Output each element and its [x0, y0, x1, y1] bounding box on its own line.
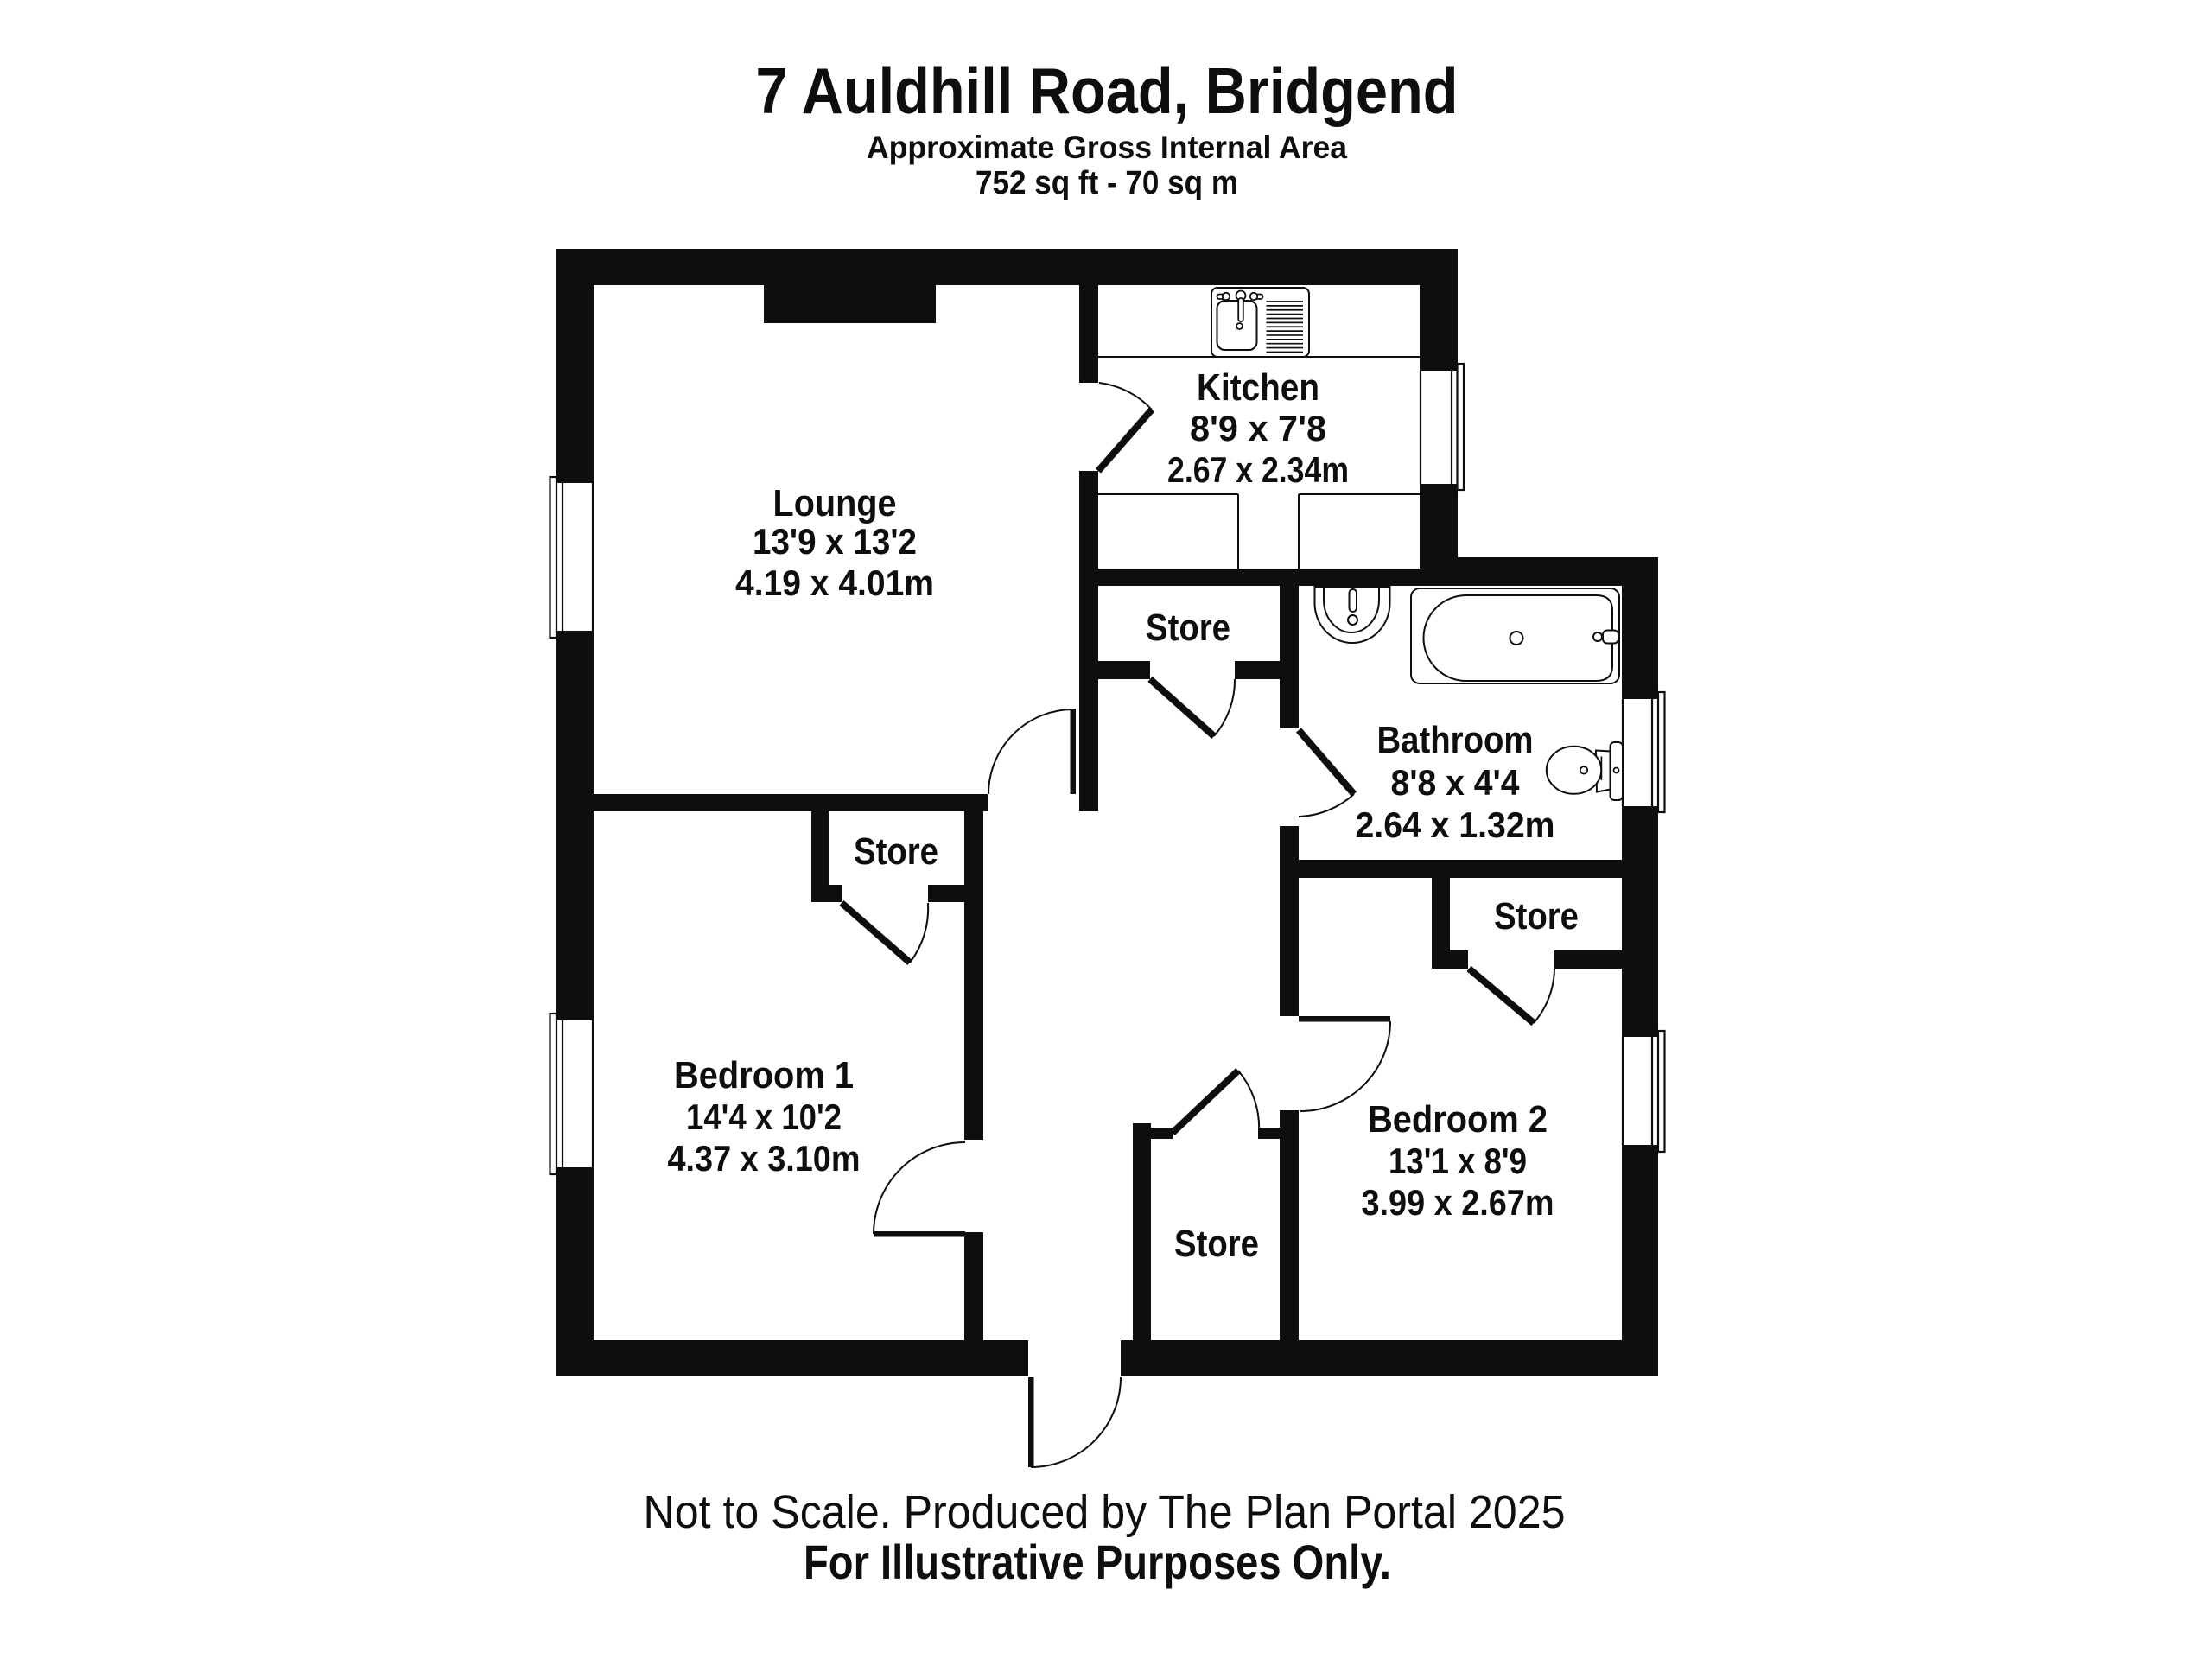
svg-text:Store: Store — [1174, 1223, 1259, 1265]
svg-text:2.64 x 1.32m: 2.64 x 1.32m — [1356, 804, 1555, 845]
svg-text:4.19 x 4.01m: 4.19 x 4.01m — [735, 563, 934, 603]
svg-text:14'4 x 10'2: 14'4 x 10'2 — [686, 1096, 842, 1137]
svg-text:Store: Store — [854, 830, 938, 873]
svg-text:2.67 x 2.34m: 2.67 x 2.34m — [1167, 449, 1349, 490]
svg-text:Bedroom 2: Bedroom 2 — [1368, 1098, 1548, 1141]
svg-text:13'9 x 13'2: 13'9 x 13'2 — [753, 521, 917, 562]
svg-text:8'9 x 7'8: 8'9 x 7'8 — [1190, 408, 1326, 448]
svg-text:3.99 x 2.67m: 3.99 x 2.67m — [1362, 1182, 1554, 1223]
svg-text:Approximate Gross Internal Are: Approximate Gross Internal Area — [867, 130, 1347, 165]
svg-text:Kitchen: Kitchen — [1197, 366, 1319, 409]
svg-text:Not to Scale. Produced by The: Not to Scale. Produced by The Plan Porta… — [644, 1486, 1566, 1538]
svg-text:Store: Store — [1146, 607, 1230, 649]
svg-text:Bedroom 1: Bedroom 1 — [674, 1054, 854, 1096]
svg-text:Lounge: Lounge — [773, 482, 897, 524]
svg-text:7 Auldhill Road, Bridgend: 7 Auldhill Road, Bridgend — [756, 54, 1459, 127]
svg-text:Bathroom: Bathroom — [1377, 719, 1534, 761]
svg-text:For Illustrative Purposes Only: For Illustrative Purposes Only. — [804, 1535, 1391, 1589]
svg-text:8'8 x 4'4: 8'8 x 4'4 — [1391, 762, 1521, 803]
svg-text:13'1 x 8'9: 13'1 x 8'9 — [1389, 1141, 1527, 1181]
svg-text:4.37 x 3.10m: 4.37 x 3.10m — [668, 1138, 861, 1179]
svg-text:Store: Store — [1494, 895, 1579, 938]
svg-text:752 sq ft - 70 sq m: 752 sq ft - 70 sq m — [976, 165, 1238, 201]
